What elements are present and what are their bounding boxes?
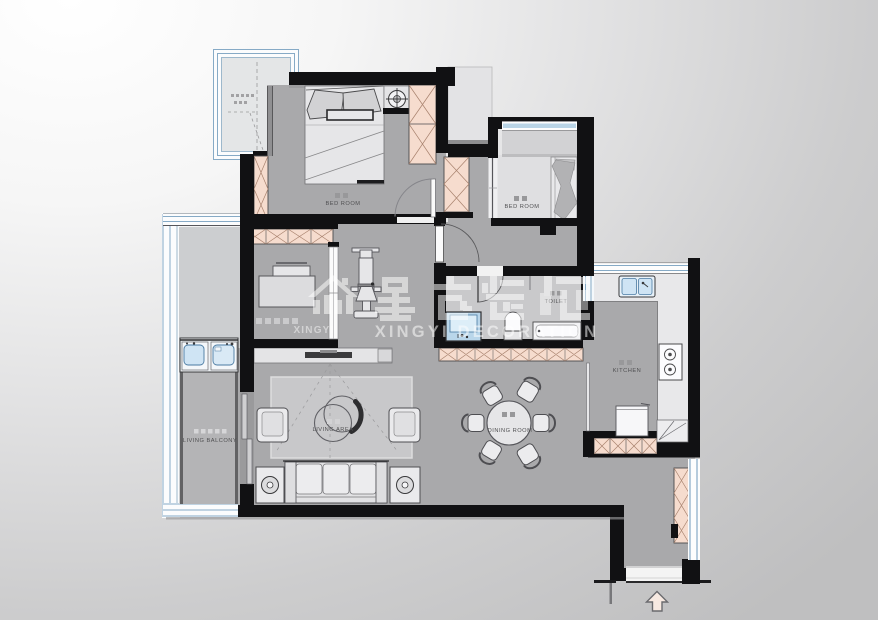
svg-text:LIVING BALCONY: LIVING BALCONY xyxy=(183,438,237,444)
svg-text:XINGYI: XINGYI xyxy=(293,325,334,336)
svg-text:LIVING AREA: LIVING AREA xyxy=(313,427,354,433)
svg-text:XINGYI DECORATION: XINGYI DECORATION xyxy=(375,323,600,341)
svg-text:DINING ROOM: DINING ROOM xyxy=(488,428,533,434)
svg-text:BED ROOM: BED ROOM xyxy=(326,201,361,207)
svg-text:BED ROOM: BED ROOM xyxy=(505,204,540,210)
svg-text:KITCHEN: KITCHEN xyxy=(613,368,641,374)
